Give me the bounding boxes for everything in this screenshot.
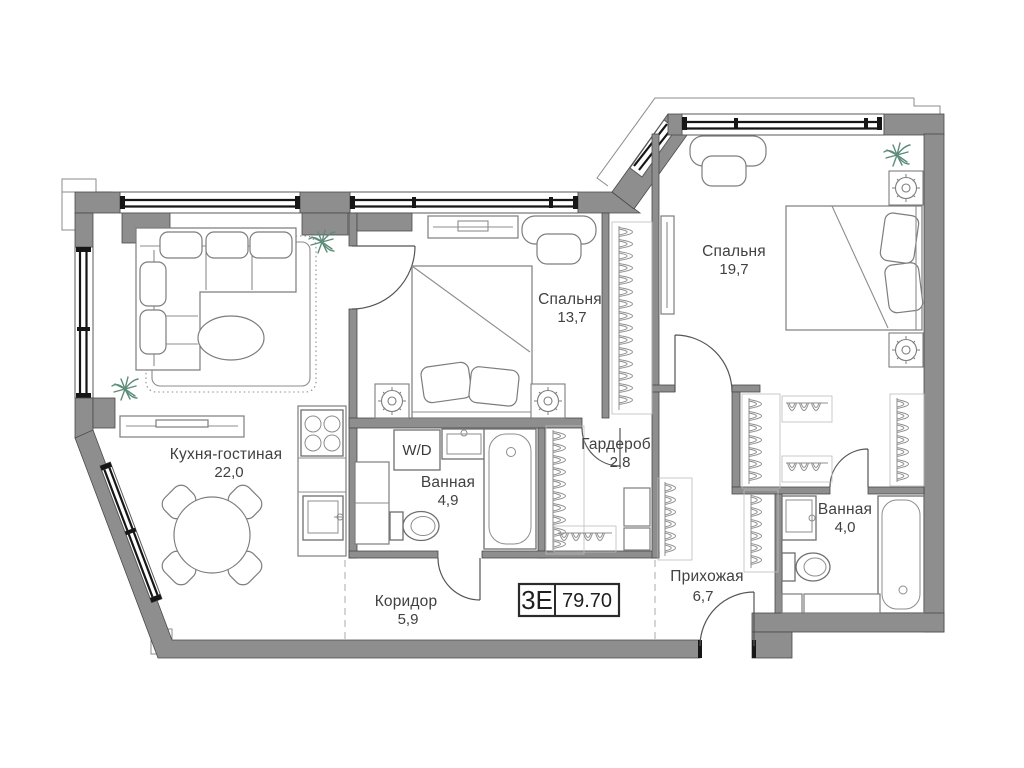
nightstand-lamp	[889, 171, 923, 205]
wardrobe-rack	[749, 398, 762, 484]
tv-panel	[661, 216, 674, 314]
living-area-furniture	[120, 228, 346, 589]
room-area-wardrobe: 2,8	[610, 454, 631, 471]
pillow	[468, 366, 520, 407]
window-left	[75, 247, 93, 398]
toilet	[390, 512, 439, 541]
room-area-bedroom-small: 13,7	[557, 309, 586, 326]
bedroom-large-furniture	[661, 136, 924, 367]
apartment-badge: 3Е 79.70	[519, 584, 619, 616]
coat-rack	[665, 482, 676, 556]
bed	[786, 206, 924, 330]
floor-plan-page: W/D	[0, 0, 1024, 768]
pillow	[879, 212, 919, 264]
stove	[301, 410, 343, 456]
wall-left	[75, 213, 93, 247]
door-bedroom-small	[352, 246, 415, 309]
washer-dryer-label: W/D	[402, 442, 431, 459]
door-bathroom-main	[438, 558, 480, 600]
kitchen-counter	[298, 406, 346, 556]
room-label-corridor: Коридор	[375, 593, 438, 610]
plant-icon	[112, 377, 138, 400]
dining-table	[174, 497, 250, 573]
room-label-bathroom-second: Ванная	[818, 501, 872, 518]
wall-pier	[884, 114, 944, 135]
plant-icon	[884, 143, 910, 166]
wardrobe-rack	[553, 430, 566, 550]
wall-step	[752, 632, 792, 658]
wardrobe-rack	[897, 398, 909, 482]
room-area-hallway: 6,7	[693, 588, 714, 605]
room-area-bathroom-main: 4,9	[438, 492, 459, 509]
bathtub	[878, 496, 924, 613]
wardrobe-rack	[786, 403, 828, 411]
bathroom-sink	[782, 496, 816, 540]
pillow	[884, 262, 924, 314]
pillow	[420, 361, 473, 403]
tv-console	[120, 416, 244, 437]
door-bedroom-large	[675, 335, 732, 392]
wall-right	[924, 134, 944, 632]
desk	[690, 136, 766, 186]
desk	[522, 216, 596, 264]
wall-bottom-right	[752, 613, 944, 632]
coffee-table	[198, 316, 264, 360]
room-label-wardrobe: Гардероб	[581, 436, 651, 453]
room-area-corridor: 5,9	[398, 611, 419, 628]
floor-plan-svg: W/D	[0, 0, 1024, 768]
nightstand-lamp	[889, 333, 923, 367]
coat-rack	[751, 494, 762, 568]
bathroom-cabinet	[355, 462, 389, 544]
bathtub	[484, 429, 536, 549]
bed	[412, 266, 532, 418]
column	[93, 398, 115, 428]
wardrobe-rack	[558, 533, 612, 541]
bathroom-cabinet	[782, 594, 880, 613]
room-label-bedroom-large: Спальня	[702, 243, 766, 260]
wall-pier	[75, 192, 120, 213]
wardrobe-rack	[786, 463, 828, 471]
dresser	[428, 216, 518, 238]
kitchen-sink	[303, 496, 344, 540]
door-bathroom-second	[830, 449, 868, 487]
window-kitchen-top	[120, 192, 300, 213]
room-area-bathroom-second: 4,0	[835, 519, 856, 536]
desk-chair	[537, 234, 581, 264]
nightstand-lamp	[531, 384, 565, 418]
window-bedroom-small-top	[350, 192, 578, 213]
desk-chair	[702, 156, 746, 186]
wall-pier	[300, 192, 350, 213]
dining-set	[158, 481, 265, 588]
bathroom-sink	[442, 429, 486, 459]
window-bedroom-large-top	[682, 114, 884, 135]
room-area-kitchen-living: 22,0	[214, 464, 243, 481]
toilet	[782, 553, 830, 581]
room-area-bedroom-large: 19,7	[719, 261, 748, 278]
wardrobe-shelf-unit	[624, 488, 650, 550]
room-label-hallway: Прихожая	[670, 568, 743, 585]
badge-type: 3Е	[521, 585, 553, 615]
washer-dryer: W/D	[394, 430, 440, 470]
room-label-bedroom-small: Спальня	[538, 291, 602, 308]
wardrobe-rack	[619, 226, 633, 410]
nightstand-lamp	[375, 384, 409, 418]
wall-pier	[668, 114, 682, 135]
badge-area: 79.70	[562, 590, 612, 612]
room-label-bathroom-main: Ванная	[421, 474, 475, 491]
room-label-kitchen-living: Кухня-гостиная	[170, 446, 282, 463]
